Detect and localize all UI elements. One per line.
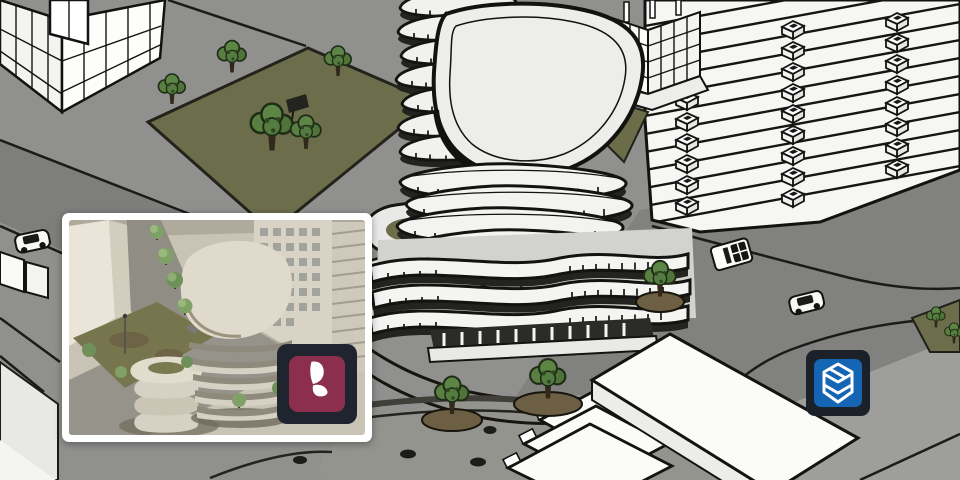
sketchup-badge[interactable] <box>806 350 870 416</box>
model-viewport[interactable] <box>0 0 960 480</box>
lumion-badge[interactable] <box>277 344 357 424</box>
